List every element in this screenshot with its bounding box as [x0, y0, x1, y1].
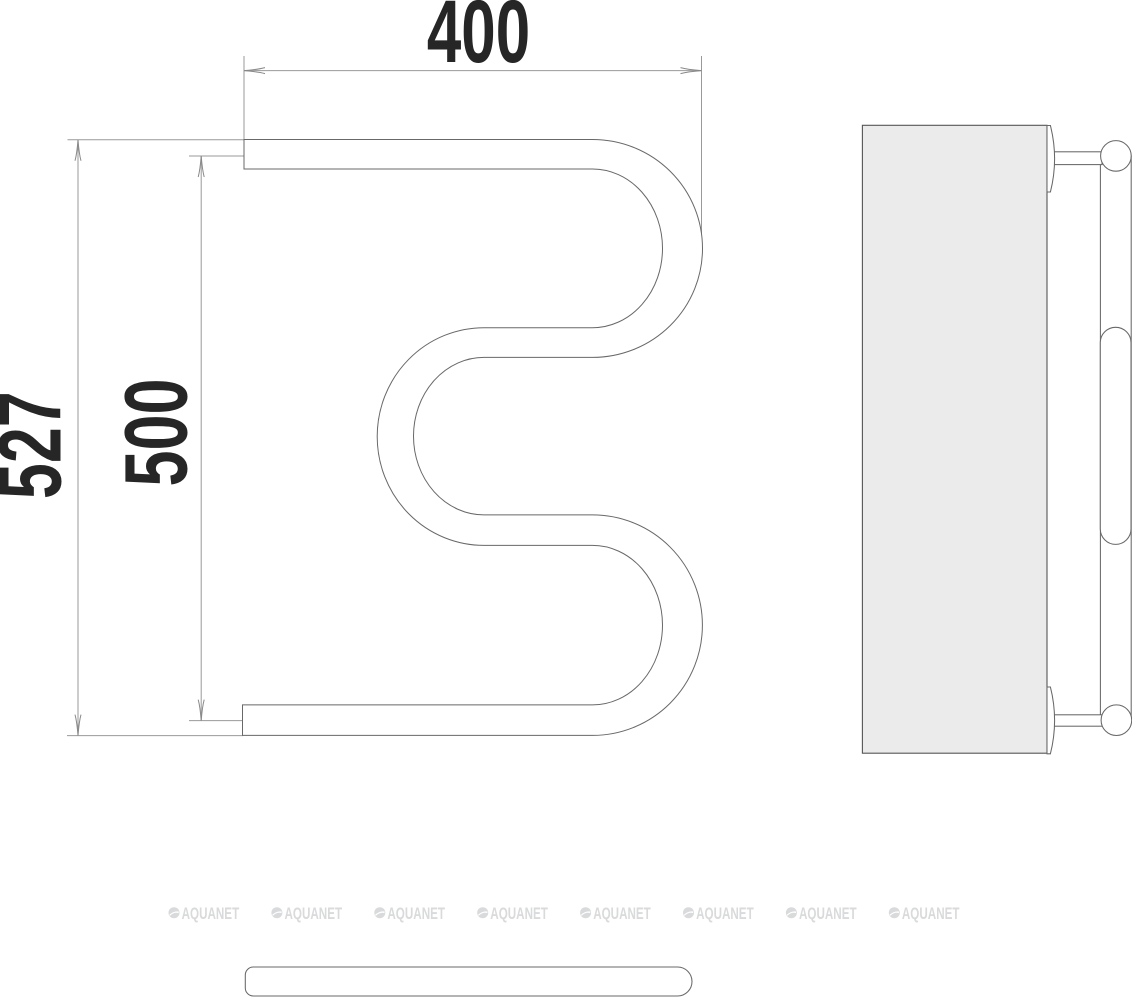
svg-text:AQUANET: AQUANET	[182, 904, 240, 923]
svg-text:AQUANET: AQUANET	[902, 904, 960, 923]
svg-text:500: 500	[107, 379, 206, 487]
svg-text:AQUANET: AQUANET	[490, 904, 548, 923]
svg-text:AQUANET: AQUANET	[593, 904, 651, 923]
svg-text:AQUANET: AQUANET	[387, 904, 445, 923]
svg-text:AQUANET: AQUANET	[799, 904, 857, 923]
svg-text:527: 527	[0, 391, 79, 499]
svg-text:400: 400	[427, 0, 530, 81]
svg-text:AQUANET: AQUANET	[285, 904, 343, 923]
svg-text:AQUANET: AQUANET	[696, 904, 754, 923]
